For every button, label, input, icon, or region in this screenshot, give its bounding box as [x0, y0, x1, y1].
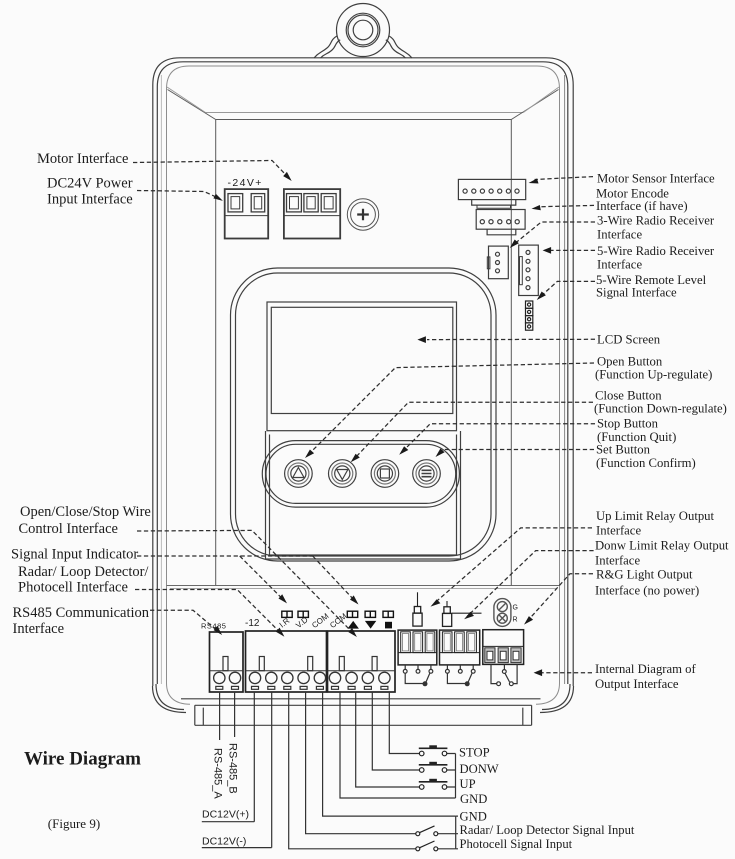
svg-text:(Function Up-regulate): (Function Up-regulate) — [595, 368, 712, 382]
svg-text:Signal Interface: Signal Interface — [596, 286, 677, 300]
svg-text:Stop Button: Stop Button — [597, 417, 659, 431]
svg-text:Control Interface: Control Interface — [19, 521, 118, 537]
svg-text:Photocell Interface: Photocell Interface — [18, 580, 128, 596]
svg-text:(Function Confirm): (Function Confirm) — [596, 456, 696, 470]
svg-text:Motor Interface: Motor Interface — [37, 151, 128, 167]
svg-text:Donw Limit Relay Output: Donw Limit Relay Output — [595, 539, 729, 553]
svg-text:Output Interface: Output Interface — [595, 677, 679, 691]
svg-text:Wire Diagram: Wire Diagram — [24, 749, 141, 770]
svg-text:RS-485_B: RS-485_B — [227, 743, 239, 794]
svg-text:Interface: Interface — [595, 554, 640, 568]
svg-text:(Function Down-regulate): (Function Down-regulate) — [594, 402, 727, 416]
svg-text:-12: -12 — [245, 618, 260, 629]
svg-text:R: R — [513, 617, 518, 624]
svg-text:GND: GND — [460, 809, 487, 823]
svg-text:Signal Input Indicator: Signal Input Indicator — [11, 547, 138, 563]
svg-text:3-Wire Radio Receiver: 3-Wire Radio Receiver — [597, 214, 715, 228]
svg-text:Input Interface: Input Interface — [47, 192, 133, 208]
svg-text:Internal Diagram of: Internal Diagram of — [595, 662, 697, 676]
svg-text:Interface: Interface — [596, 524, 641, 538]
svg-text:Interface (no power): Interface (no power) — [595, 584, 699, 598]
svg-text:Set Button: Set Button — [596, 443, 651, 457]
svg-text:(Figure 9): (Figure 9) — [48, 816, 100, 831]
svg-text:UP: UP — [460, 777, 476, 791]
svg-text:STOP: STOP — [459, 746, 490, 760]
svg-text:R&G Light Output: R&G Light Output — [596, 568, 693, 582]
svg-text:LCD Screen: LCD Screen — [597, 333, 661, 347]
svg-text:RS-485_A: RS-485_A — [212, 748, 224, 799]
svg-text:Close Button: Close Button — [595, 389, 662, 403]
svg-text:Interface: Interface — [597, 228, 642, 242]
svg-text:Open/Close/Stop Wire: Open/Close/Stop Wire — [20, 504, 151, 520]
svg-text:Radar/ Loop Detector Signal In: Radar/ Loop Detector Signal Input — [460, 823, 635, 837]
svg-text:DC24V Power: DC24V Power — [47, 176, 133, 192]
svg-text:Open Button: Open Button — [597, 355, 663, 369]
svg-text:Radar/ Loop Detector/: Radar/ Loop Detector/ — [18, 564, 149, 580]
svg-text:DONW: DONW — [460, 762, 499, 776]
svg-text:Motor Sensor Interface: Motor Sensor Interface — [597, 172, 715, 186]
svg-text:RS485 Communication: RS485 Communication — [13, 605, 150, 621]
svg-text:5-Wire Radio Receiver: 5-Wire Radio Receiver — [597, 244, 715, 258]
svg-text:Interface: Interface — [13, 621, 65, 637]
svg-text:GND: GND — [460, 792, 487, 806]
svg-text:Photocell Signal Input: Photocell Signal Input — [460, 837, 573, 851]
svg-text:-24V+: -24V+ — [228, 177, 263, 189]
svg-text:G: G — [513, 605, 518, 612]
svg-text:DC12V(-): DC12V(-) — [202, 836, 246, 848]
svg-text:Up Limit Relay Output: Up Limit Relay Output — [596, 509, 715, 523]
svg-text:Interface (if have): Interface (if have) — [596, 199, 688, 213]
svg-text:Interface: Interface — [597, 258, 642, 272]
svg-text:DC12V(+): DC12V(+) — [202, 809, 249, 821]
svg-text:RS485: RS485 — [201, 622, 226, 631]
